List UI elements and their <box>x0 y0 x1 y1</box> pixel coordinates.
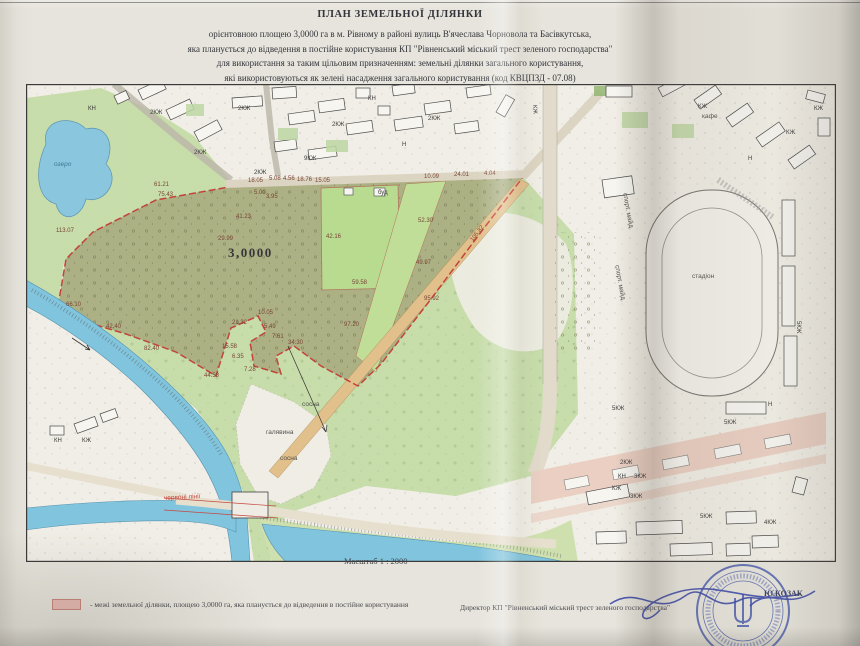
plan-subtitle-line-1: орієнтовною площею 3,0000 га в м. Рівном… <box>10 27 790 42</box>
map-label: 5КЖ <box>700 514 712 520</box>
map-label: 5КЖ <box>795 321 801 333</box>
handwritten-signature <box>600 566 830 646</box>
map-label: 2КЖ <box>194 150 206 156</box>
plan-title: ПЛАН ЗЕМЕЛЬНОЇ ДІЛЯНКИ <box>10 9 790 20</box>
map-label: 9КЖ <box>304 156 316 162</box>
map-label: КЖ <box>814 106 823 112</box>
page-top-rule <box>0 2 860 3</box>
map-label: КН <box>368 96 376 102</box>
map-label: 2КЖ <box>620 460 632 466</box>
plan-header: ПЛАН ЗЕМЕЛЬНОЇ ДІЛЯНКИ орієнтовною площе… <box>10 9 790 85</box>
map-label: КЖ <box>82 438 91 444</box>
building-labels: КН2КЖ2КЖ2КЖ2КЖ9КЖ2КЖКНН2КЖбудКЖКЖКЖНКЖ5К… <box>26 84 836 562</box>
map-label: КН <box>88 106 96 112</box>
map-label: 3КЖ <box>634 474 646 480</box>
plan-subtitle-line-4: які використовуються як зелені насадженн… <box>10 71 790 86</box>
map-label: 2КЖ <box>332 122 344 128</box>
map-label: 2КЖ <box>428 116 440 122</box>
map-label: КН <box>618 474 626 480</box>
parcel-boundary-symbol <box>52 599 81 610</box>
cadastral-map: 113.0761.2175.4329.9941.2318.055.084.561… <box>26 84 836 562</box>
map-label: Н <box>768 402 772 408</box>
map-label: 2КЖ <box>150 110 162 116</box>
map-label: КЖ <box>612 486 621 492</box>
map-label: КЖ <box>698 104 707 110</box>
map-label: 5КЖ <box>724 420 736 426</box>
map-label: буд <box>378 190 388 196</box>
map-label: Н <box>748 156 752 162</box>
map-label: 5КЖ <box>612 406 624 412</box>
map-label: 3КЖ <box>630 494 642 500</box>
plan-subtitle-line-3: для використання за таким цільовим призн… <box>10 56 790 71</box>
map-scale-label: Масштаб 1 : 2000 <box>344 556 408 566</box>
map-label: КН <box>54 438 62 444</box>
signer-name: Ю.КОЗАК <box>764 589 803 598</box>
map-label: 4КЖ <box>764 520 776 526</box>
plan-subtitle-line-2: яка планується до відведення в постійне … <box>10 42 790 57</box>
map-label: КЖ <box>786 130 795 136</box>
map-label: 2КЖ <box>254 170 266 176</box>
map-label: Н <box>402 142 406 148</box>
map-label: 2КЖ <box>238 106 250 112</box>
map-label: КЖ <box>531 105 538 115</box>
scanned-land-plan-photo: ПЛАН ЗЕМЕЛЬНОЇ ДІЛЯНКИ орієнтовною площе… <box>0 0 860 646</box>
legend-text: - межі земельної ділянки, площею 3,0000 … <box>90 600 408 609</box>
legend-row: - межі земельної ділянки, площею 3,0000 … <box>52 599 408 610</box>
